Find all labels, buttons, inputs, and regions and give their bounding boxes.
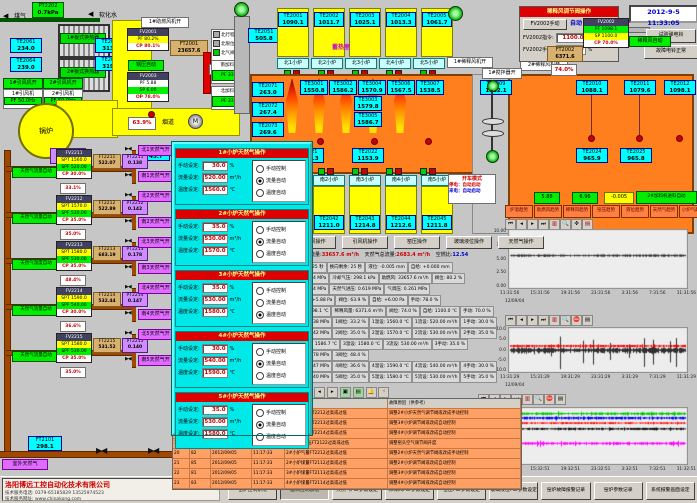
- fv-tag: FV2213: [57, 242, 91, 249]
- ft-tag: FT2002: [556, 47, 575, 53]
- trend-button[interactable]: 助燃风趋势: [534, 205, 562, 218]
- manual-unit: %: [230, 224, 235, 230]
- radio-label: 温度自动: [266, 251, 286, 257]
- te-value: 965.9: [577, 156, 607, 163]
- gas-total-label: 天然气总流量:: [365, 252, 397, 258]
- te2010-readout: TE20101088.1: [576, 80, 608, 95]
- branch-flow-readout: FT2214532.44: [93, 292, 121, 307]
- trend-button[interactable]: 炉温趋势: [505, 205, 533, 218]
- flow-unit: m³/h: [230, 419, 242, 425]
- temp-set-label: 温度设定:: [178, 370, 200, 376]
- manual-set-label: 手动设定:: [178, 285, 200, 291]
- manual-set-label: 手动设定:: [178, 407, 200, 413]
- flow-set-input[interactable]: 520.00: [202, 173, 228, 183]
- mode-radio-group: 手动控制 流量自动 温度自动: [252, 404, 306, 446]
- radio-manual-control[interactable]: 手动控制: [256, 163, 302, 175]
- radio-icon[interactable]: [256, 360, 264, 368]
- temp-set-input[interactable]: 1580.0: [202, 307, 228, 317]
- te-readout: TE30061567.5: [387, 80, 415, 95]
- bell-normal-button[interactable]: 故障电铃正常: [644, 45, 697, 59]
- radio-manual-control[interactable]: 手动控制: [256, 407, 302, 419]
- radio-label: 温度自动: [266, 373, 286, 379]
- te-readout: TE30051586.7: [354, 112, 382, 127]
- operation-button[interactable]: 天然气操作: [498, 236, 544, 249]
- radio-manual-control[interactable]: 手动控制: [256, 346, 302, 358]
- chart1-x-axis: 11:31:5615:31:5619:31:5623:31:563:31:567…: [500, 291, 696, 296]
- feeder-auto-status: 2#加料机进料自动: [636, 191, 697, 204]
- flow-set-input[interactable]: 530.00: [202, 295, 228, 305]
- south-chamber: TE20421211.0: [313, 186, 345, 234]
- manual-set-input[interactable]: 35.0: [202, 222, 228, 232]
- radio-icon[interactable]: [256, 299, 264, 307]
- operation-button[interactable]: 玻璃液位操作: [446, 236, 492, 249]
- fv2002-mode-state: 自动: [570, 19, 582, 30]
- flow-unit: m³/h: [230, 358, 242, 364]
- south-gas-open-status: 南3天然气开: [138, 263, 173, 274]
- radio-label: 手动控制: [266, 288, 286, 294]
- alarm-point: 3#小炉煤量FT2113过高或过低: [285, 469, 388, 478]
- chart-save-icon[interactable]: ▤: [555, 394, 566, 405]
- te-readout: TE20221153.9: [352, 148, 384, 163]
- radio-icon[interactable]: [256, 311, 264, 319]
- manual-set-input[interactable]: 35.0: [202, 283, 228, 293]
- te-value: 1567.5: [388, 88, 414, 95]
- gas-valve-icon: ▶◀: [125, 285, 131, 290]
- flow-set-input[interactable]: 530.00: [202, 234, 228, 244]
- branch-valve-value: 35.0%: [65, 370, 81, 375]
- scada-screen: ◀ 煤气 PT22020.7kPa ◀ 软化水 1#板式换热器 2#板式换热器 …: [0, 0, 697, 503]
- chart-save-icon[interactable]: ▤: [582, 315, 593, 326]
- alarm-cause: 调整2#小炉调节阀或改成自动控制: [388, 459, 521, 468]
- flow-set-input[interactable]: 530.00: [202, 417, 228, 427]
- gas-main-valve-icon: ▶◀: [96, 448, 106, 453]
- chart-stop-icon[interactable]: ⛔: [571, 315, 582, 326]
- radio-label: 温度自动: [266, 312, 286, 318]
- param-cell: 4阀位: 36.6 %: [332, 361, 369, 372]
- param-cell: 冷却气压: 298.1 kPa: [329, 273, 378, 284]
- port-close-indicator: [395, 168, 402, 175]
- temp-set-input[interactable]: 1570.0: [202, 246, 228, 256]
- comb-fan1-status: 1#助燃风机开: [141, 17, 189, 28]
- param-cell: 阀位: 74.0 %: [386, 306, 420, 317]
- te-value: 239.0: [11, 65, 41, 72]
- regenerator-chamber: TE20011090.1: [277, 8, 309, 57]
- alarm-row[interactable]: 20 82 2012/09/05 11:17:33 2#小炉气量FT2212过高…: [173, 449, 521, 459]
- ratio-label: 空燃比:: [436, 252, 453, 258]
- footer-nav-button[interactable]: 系统报警画面设定: [646, 482, 695, 500]
- alarm-date: 2012/09/05: [211, 479, 252, 488]
- measure-dot: [371, 138, 378, 145]
- alarm-cause: 调整4#小炉调节阀或改成自动控制: [388, 479, 521, 488]
- section-setpoints: 手动设定: 35.0 % 流量设定: 530.00 m³/h 温度设定: 158…: [178, 282, 252, 324]
- gas-valve-icon: ▶◀: [125, 311, 131, 316]
- radio-flow-auto[interactable]: 流量自动: [256, 297, 302, 309]
- fv-spt: SPT 1580.0: [57, 249, 91, 256]
- trend-buttons-row: 炉温趋势助燃风趋势稀释风趋势窑压趋势液位趋势天然气趋势小炉气趋势: [505, 205, 697, 218]
- fv2002-tag: FV2002: [584, 19, 628, 26]
- north-port-label: 北3小炉: [345, 58, 377, 69]
- radio-icon[interactable]: [256, 189, 264, 197]
- chart-stop-icon[interactable]: ⛔: [544, 394, 555, 405]
- branch-fv-block: FV2211 SPT 1560.0 SPF 520.00 CP 30.0%: [56, 149, 92, 179]
- te-readout: TE2071263.0: [252, 82, 284, 97]
- north-port-label: 北4小炉: [379, 58, 411, 69]
- te-stem: [591, 95, 592, 135]
- ft-value: 23657.6: [178, 48, 201, 54]
- temp-set-input[interactable]: 1580.0: [202, 429, 228, 439]
- temp-unit: ℃: [230, 187, 236, 193]
- fv2002-sp-input[interactable]: 1100.0: [556, 33, 586, 43]
- param-cell: 液位: -0.005 mm: [365, 262, 408, 273]
- radio-temp-auto[interactable]: 温度自动: [256, 187, 302, 199]
- param-cell: 2流设: 530.00 m³/h: [412, 328, 461, 339]
- x-tick-label: 7:31:29: [649, 375, 666, 380]
- param-cell: 2手动: 35.0 %: [460, 328, 497, 339]
- port-indicators: [311, 168, 341, 175]
- footer-nav-button[interactable]: 窑炉故障报警记录: [541, 482, 590, 500]
- alarm-date: 2012/09/05: [211, 449, 252, 458]
- te-value: 1013.3: [387, 20, 415, 27]
- fv-spf: SPF 530.00: [57, 348, 91, 355]
- comb-fan-icon: [448, 6, 463, 21]
- dilution-fan1-status: 1#稀释风机开: [447, 57, 493, 68]
- parameter-row: 稀释风温: 98.1 ℃稀释风量: 6371.6 m³/h阀位: 74.0 %自…: [288, 306, 520, 317]
- alarm-no: 20: [173, 449, 190, 458]
- radio-label: 手动控制: [266, 410, 286, 416]
- pt-value: 0.140: [128, 345, 142, 350]
- fv2002-manual-button[interactable]: FV2002手动: [523, 19, 567, 30]
- kiln-pressure-status: 5.88: [534, 192, 560, 204]
- radio-icon[interactable]: [256, 177, 264, 185]
- legend-label: 北气阀: [221, 51, 235, 56]
- te-tag: TE3001: [301, 81, 327, 88]
- manual-set-input[interactable]: 30.0: [202, 161, 228, 171]
- section-title: 3#小炉天然气操作: [176, 271, 308, 280]
- x-tick-label: 7:32:51: [649, 467, 666, 472]
- section-title: 5#小炉天然气操作: [176, 393, 308, 402]
- gas-main-valve-icon: ▶◀: [148, 448, 158, 453]
- param-cell: 自给: +6.00 Pa: [369, 295, 407, 306]
- ft2002-readout: FT20026371.6: [547, 46, 583, 62]
- alarm-row[interactable]: 23 83 2012/09/05 11:17:33 4#小炉煤量FT2114过高…: [173, 479, 521, 489]
- chamber-te-readout: TE20431214.8: [350, 215, 380, 230]
- radio-temp-auto[interactable]: 温度自动: [256, 370, 302, 382]
- te2012-readout: TE20121098.1: [664, 80, 696, 95]
- te2064-readout: TE2064239.0: [10, 57, 42, 72]
- branch-valve-position: 36.6%: [60, 321, 86, 332]
- param-cell: 5手动: 35.0 %: [460, 372, 497, 383]
- section-title: 4#小炉天然气操作: [176, 332, 308, 341]
- regenerator-label: 蓄热室: [332, 42, 350, 51]
- fv-cp[interactable]: CP 30.0%: [57, 171, 91, 178]
- radio-icon[interactable]: [256, 287, 264, 295]
- ack-all-icon[interactable]: ▤: [353, 387, 364, 398]
- trend-button[interactable]: 液位趋势: [621, 205, 649, 218]
- param-cell: 助燃风: 33657.6 m³/h: [379, 273, 432, 284]
- radio-flow-auto[interactable]: 流量自动: [256, 419, 302, 431]
- legend-chip: [213, 40, 220, 47]
- pressure-fluctuation-trend-plot[interactable]: [508, 327, 688, 373]
- branch-auto-status: 天然气流量自动: [12, 167, 60, 178]
- temp-set-input[interactable]: 1590.0: [202, 368, 228, 378]
- measure-dot: [676, 135, 683, 142]
- pt-value: 0.142: [128, 207, 142, 212]
- alarm-no: 22: [173, 469, 190, 478]
- radio-flow-auto[interactable]: 流量自动: [256, 358, 302, 370]
- gas-valve-icon: ▶◀: [125, 265, 131, 270]
- x-tick-label: 19:32:51: [561, 467, 580, 472]
- north-gas-open-status: 北4天然气开: [138, 283, 173, 294]
- chamber-te-readout: TE20031025.1: [350, 12, 380, 27]
- trend-button[interactable]: 稀释风趋势: [563, 205, 591, 218]
- radio-flow-auto[interactable]: 流量自动: [256, 175, 302, 187]
- chamber-te-readout: TE20011090.1: [278, 12, 308, 27]
- nav-prev-icon[interactable]: ◂: [314, 387, 325, 398]
- datetime-value: 2012-9-5 11:33:05: [647, 8, 680, 27]
- param-cell: 5阀位: 35.0 %: [332, 372, 369, 383]
- alarm-code: 85: [190, 459, 211, 468]
- measure-dot: [317, 138, 324, 145]
- trend-button[interactable]: 小炉气趋势: [679, 205, 697, 218]
- gas-valve-icon: ▶◀: [125, 219, 131, 224]
- north-port-label: 北2小炉: [311, 58, 343, 69]
- port-indicators: [345, 168, 375, 175]
- x-tick-label: 7:31:56: [649, 291, 666, 296]
- te2024-readout: TE2024965.9: [576, 148, 608, 163]
- legend-chip: [213, 31, 220, 38]
- flue-damper-position: 63.9%: [128, 117, 156, 130]
- branch-fv-block: FV2213 SPT 1580.0 SPF 530.00 CP 35.0%: [56, 241, 92, 271]
- operation-button[interactable]: 窑压操作: [394, 236, 440, 249]
- gas-valve-icon: ▶◀: [125, 331, 131, 336]
- te-readout: TE2073269.6: [252, 122, 284, 137]
- ack-page-icon[interactable]: ▣: [340, 387, 351, 398]
- fv-cp[interactable]: CP 35.0%: [57, 355, 91, 362]
- y-tick-label: 10.00: [488, 229, 506, 234]
- ft-tag: FT2212: [99, 201, 116, 206]
- radio-manual-control[interactable]: 手动控制: [256, 224, 302, 236]
- radio-icon[interactable]: [256, 348, 264, 356]
- alarm-date: 2012/09/05: [211, 459, 252, 468]
- section-setpoints: 手动设定: 35.0 % 流量设定: 530.00 m³/h 温度设定: 157…: [178, 221, 252, 263]
- manual-set-input[interactable]: 30.0: [202, 344, 228, 354]
- footer-nav-button[interactable]: 窑炉参数记录: [594, 482, 643, 500]
- branch-valve-value: 48.4%: [65, 278, 81, 283]
- level-deviation-status: -0.005: [604, 192, 634, 204]
- chart-pan-icon[interactable]: ▥: [522, 394, 533, 405]
- param-cell: 1温设: 1560.0 ℃: [369, 317, 412, 328]
- startup-mode-box: 开车模式 停电：自动启动 来电：自动启动: [448, 174, 496, 204]
- te-value: 263.0: [253, 90, 283, 97]
- port-open-indicator: [386, 168, 393, 175]
- ft-value: 531.52: [98, 345, 115, 350]
- alarm-bell-icon[interactable]: 🔔: [366, 387, 377, 398]
- mode-radio-group: 手动控制 流量自动 温度自动: [252, 343, 306, 385]
- param-cell: 5温设: 1580.0 ℃: [369, 372, 412, 383]
- gas-valve-icon: ▶◀: [125, 193, 131, 198]
- alarm-row[interactable]: 21 85 2012/09/05 11:17:33 2#小炉煤量FT2112过高…: [173, 459, 521, 469]
- x-tick-label: 19:31:29: [561, 375, 580, 380]
- radio-icon[interactable]: [256, 372, 264, 380]
- chart-zoom-icon[interactable]: 🔍: [533, 394, 544, 405]
- parameter-row: 2压力: 0.142 MPa2阀位: 35.0 %2温设: 1570.0 ℃2流…: [288, 328, 520, 339]
- north-gas-open-status: 北5天然气开: [138, 329, 173, 340]
- radio-temp-auto[interactable]: 温度自动: [256, 309, 302, 321]
- legend-label: 北行程: [221, 33, 235, 38]
- param-cell: 阀位: 63.9 %: [335, 295, 369, 306]
- alarm-code: 82: [190, 449, 211, 458]
- port-indicators: [379, 168, 409, 175]
- ft-value: 298.1: [29, 444, 61, 451]
- x-tick-label: 15:31:56: [530, 291, 549, 296]
- chart-zoom-icon[interactable]: 🔍: [560, 315, 571, 326]
- alarm-cut-icon[interactable]: ⚡: [378, 387, 389, 398]
- ft-tag: FT2214: [99, 293, 116, 298]
- company-web[interactable]: 技术服务网址: www.chinakong.com: [5, 496, 217, 502]
- fv2001-tag: FV2001: [128, 29, 168, 36]
- pt-value: 0.178: [128, 253, 142, 258]
- branch-fv-block: FV2212 SPT 1570.0 SPF 530.00 CP 35.0%: [56, 195, 92, 225]
- measure-dot: [425, 138, 432, 145]
- fv-spf: SPF 520.00: [57, 164, 91, 171]
- radio-label: 温度自动: [266, 434, 286, 440]
- flow-set-input[interactable]: 540.00: [202, 356, 228, 366]
- fv2003-block: FV2003 PF 5.88 SP 6.00 OP 78.0%: [127, 72, 169, 102]
- alarm-row[interactable]: 22 81 2012/09/05 11:17:33 3#小炉煤量FT2113过高…: [173, 469, 521, 479]
- branch-flow-readout: FT2212522.89: [93, 200, 121, 215]
- operation-buttons-row: 稀释风操作引风机操作窑压操作玻璃液位操作天然气操作: [290, 236, 544, 249]
- dilution-panel-title: 稀释风调节阀操作: [520, 7, 618, 17]
- te-value: 1211.0: [315, 223, 343, 230]
- section-setpoints: 手动设定: 30.0 % 流量设定: 540.00 m³/h 温度设定: 159…: [178, 343, 252, 385]
- south-gas-open-status: 南1天然气开: [138, 171, 173, 182]
- legend-chip: [213, 49, 220, 56]
- alarm-point: 2#小炉气量FT2212过高或过低: [285, 449, 388, 458]
- fv2003-op: OP 78.0%: [128, 94, 168, 101]
- fan2-status: 2#引风机开: [43, 78, 83, 89]
- nav-next-icon[interactable]: ▸: [327, 387, 338, 398]
- x-tick-label: 3:31:56: [621, 291, 638, 296]
- radio-label: 流量自动: [266, 178, 286, 184]
- radio-icon[interactable]: [256, 226, 264, 234]
- ft2101-readout: FT2101298.1: [28, 436, 62, 451]
- te-value: 234.0: [11, 46, 41, 53]
- radio-icon[interactable]: [256, 250, 264, 258]
- chamber-te-readout: TE20441212.6: [386, 215, 416, 230]
- measure-dot: [588, 135, 595, 142]
- te-readout: TE30071538.5: [416, 80, 444, 95]
- gas-valve-icon: ▶◀: [125, 147, 131, 152]
- param-cell: 自给: +0.000 mm: [408, 262, 453, 273]
- radio-icon[interactable]: [256, 165, 264, 173]
- alarm-date: 2012/09/05: [211, 469, 252, 478]
- radio-icon[interactable]: [256, 421, 264, 429]
- south-port-label: 南2小炉: [313, 175, 345, 186]
- parameter-row: 5压力: 0.140 MPa5阀位: 35.0 %5温设: 1580.0 ℃5流…: [288, 372, 520, 383]
- branch-press-readout: PT22140.147: [122, 292, 148, 307]
- radio-icon[interactable]: [256, 238, 264, 246]
- furnace-temp-trend-plot[interactable]: [506, 407, 688, 465]
- parameter-row: 3碹顶高温: 1586.7 ℃3温设: 1580.0 ℃3流设: 530.00 …: [288, 339, 520, 350]
- branch-valve-position: 35.0%: [60, 229, 86, 240]
- fv-cp[interactable]: CP 35.0%: [57, 263, 91, 270]
- te-tag: TE3006: [388, 81, 414, 88]
- param-cell: 1手动: 30.0 %: [460, 317, 497, 328]
- trend-button[interactable]: 天然气趋势: [650, 205, 678, 218]
- temp-unit: ℃: [230, 431, 236, 437]
- te2011-readout: TE20111079.6: [624, 80, 656, 95]
- branch-valve-value: 35.0%: [65, 232, 81, 237]
- te-value: 1214.8: [351, 223, 379, 230]
- radio-icon[interactable]: [256, 409, 264, 417]
- north-port-label: 北5小炉: [413, 58, 445, 69]
- alarm-time: 11:17:33: [252, 479, 285, 488]
- radio-icon[interactable]: [256, 433, 264, 441]
- trend-button[interactable]: 窑压趋势: [592, 205, 620, 218]
- crown-te-row: TE30011550.8TE30021586.2TE30041570.9TE30…: [300, 80, 444, 95]
- radio-label: 手动控制: [266, 227, 286, 233]
- stirrer-disc: [482, 130, 504, 137]
- te-value: 965.8: [621, 156, 651, 163]
- ft-tag: FT2213: [99, 247, 116, 252]
- ft-tag: FT2211: [99, 155, 116, 160]
- startup-title: 开车模式: [449, 175, 495, 182]
- chart-last-icon[interactable]: ⏭: [538, 315, 549, 326]
- fv2002-cp[interactable]: CP 70.0%: [584, 40, 628, 47]
- manual-set-input[interactable]: 35.0: [202, 405, 228, 415]
- level-status: 6.96: [572, 192, 598, 204]
- te-value: 1538.5: [417, 88, 443, 95]
- radio-flow-auto[interactable]: 流量自动: [256, 236, 302, 248]
- fv-cp[interactable]: CP 30.0%: [57, 309, 91, 316]
- ft-value: 532.44: [98, 299, 115, 304]
- radio-temp-auto[interactable]: 温度自动: [256, 431, 302, 443]
- chart-pan-icon[interactable]: ▥: [549, 315, 560, 326]
- param-cell: 4温设: 1590.0 ℃: [369, 361, 412, 372]
- port-indicators: [413, 168, 443, 175]
- mode-radio-group: 手动控制 流量自动 温度自动: [252, 160, 306, 202]
- temp-set-input[interactable]: 1560.0: [202, 185, 228, 195]
- port-open-indicator: [318, 168, 325, 175]
- chamber-te-readout: TE20451211.8: [422, 215, 452, 230]
- south-gas-open-status: 南2天然气开: [138, 217, 173, 228]
- branch-press-readout: PT22110.138: [122, 154, 148, 169]
- fv2002-sp[interactable]: SP 1100.0: [584, 33, 628, 40]
- fv-cp[interactable]: CP 35.0%: [57, 217, 91, 224]
- chart-forward-icon[interactable]: ▸: [527, 315, 538, 326]
- temp-unit: ℃: [230, 248, 236, 254]
- branch-auto-status: 天然气流量自动: [12, 351, 60, 362]
- radio-manual-control[interactable]: 手动控制: [256, 285, 302, 297]
- burner-flame: [286, 78, 298, 133]
- motor-m: M: [193, 118, 198, 125]
- fan1-status: 1#引风机开: [3, 78, 43, 89]
- gas-operation-popup: 1#小炉天然气操作 手动设定: 30.0 % 流量设定: 520.00 m³/h: [172, 142, 312, 435]
- flue-motor: M: [188, 114, 203, 129]
- param-cell: 自给: 1100.0 ℃: [420, 306, 460, 317]
- operation-button[interactable]: 引风机操作: [342, 236, 388, 249]
- regenerator-chamber: TE20031025.1: [349, 8, 381, 57]
- north-port-label: 北1小炉: [277, 58, 309, 69]
- param-cell: 1阀位: 33.2 %: [332, 317, 369, 328]
- manual-unit: %: [230, 163, 235, 169]
- outdoor-gas-label: 室外天然气: [2, 459, 48, 470]
- port-open-indicator: [352, 168, 359, 175]
- flow-set-label: 流量设定:: [178, 236, 200, 242]
- param-cell: 4流设: 540.00 m³/h: [412, 361, 461, 372]
- radio-temp-auto[interactable]: 温度自动: [256, 248, 302, 260]
- x-tick-label: 3:31:29: [621, 375, 638, 380]
